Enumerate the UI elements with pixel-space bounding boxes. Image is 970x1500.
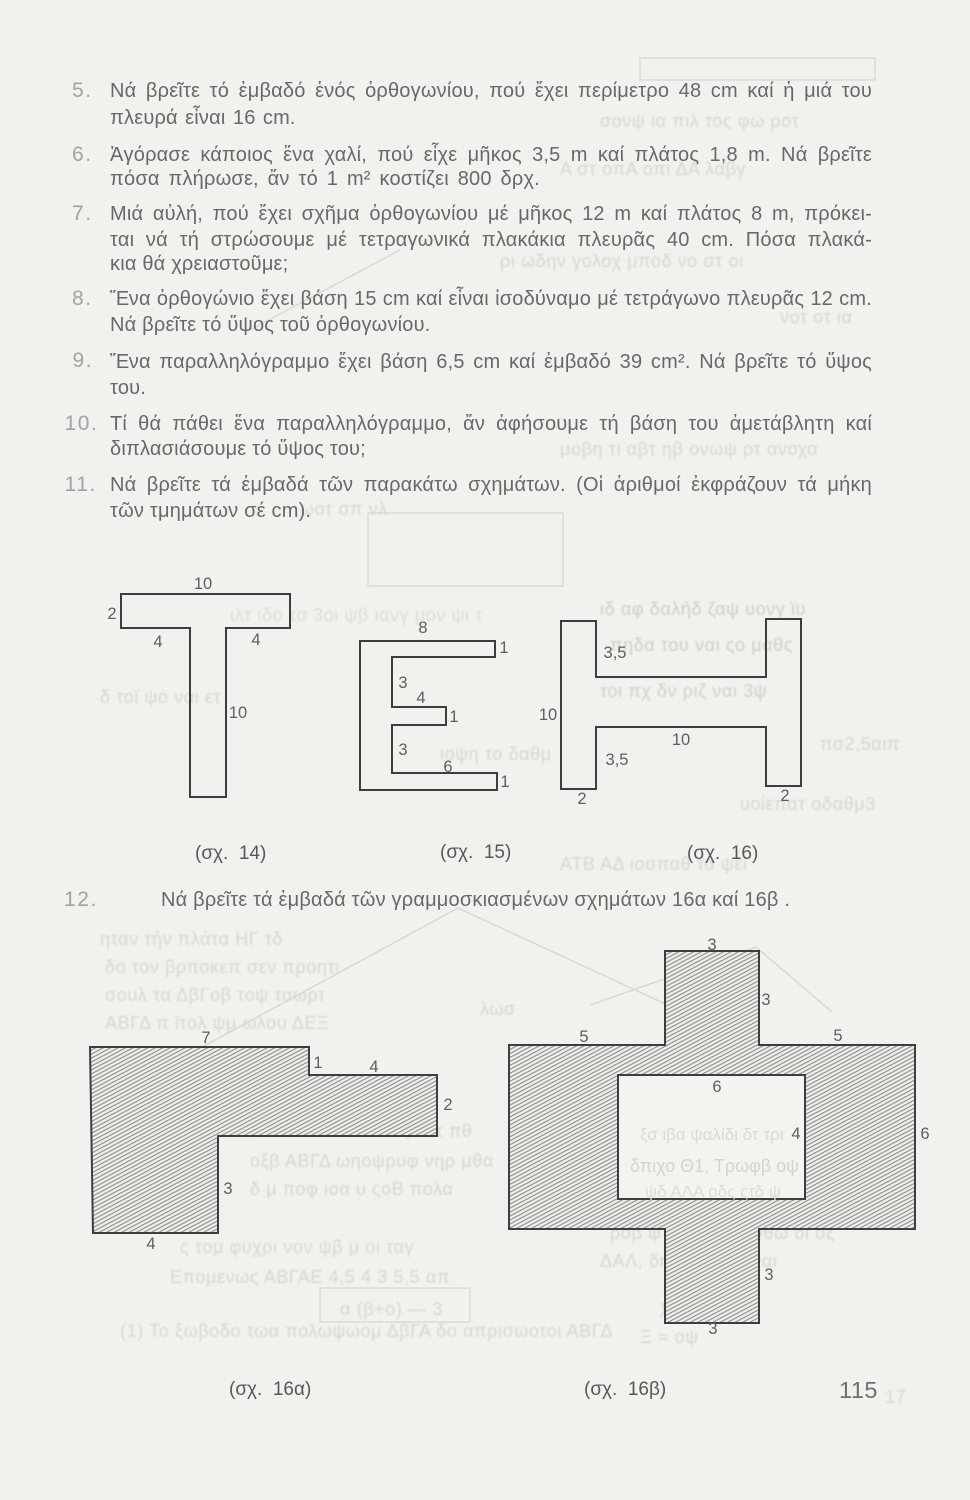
svg-text:1: 1 — [313, 1054, 322, 1072]
svg-text:8: 8 — [418, 619, 427, 637]
svg-text:ψδ ΑΛΑ οδς ςτδ ψ: ψδ ΑΛΑ οδς ςτδ ψ — [645, 1182, 781, 1201]
svg-text:3: 3 — [764, 1266, 773, 1284]
svg-text:4: 4 — [146, 1235, 155, 1253]
svg-text:2: 2 — [107, 605, 116, 623]
svg-text:4: 4 — [251, 631, 260, 649]
svg-text:2: 2 — [780, 787, 789, 805]
svg-text:1: 1 — [499, 639, 508, 657]
svg-text:3,5: 3,5 — [604, 644, 627, 662]
svg-text:3: 3 — [398, 741, 407, 759]
svg-text:1: 1 — [500, 773, 509, 791]
svg-text:2: 2 — [443, 1096, 452, 1114]
svg-text:4: 4 — [153, 633, 162, 651]
svg-text:5: 5 — [579, 1028, 588, 1046]
svg-text:δπιχο Θ1, Τρωφβ οψ: δπιχο Θ1, Τρωφβ οψ — [630, 1156, 799, 1176]
svg-text:3: 3 — [398, 674, 407, 692]
svg-text:3: 3 — [708, 1320, 717, 1338]
svg-text:6: 6 — [712, 1078, 721, 1096]
svg-text:3: 3 — [707, 936, 716, 954]
svg-text:3: 3 — [223, 1180, 232, 1198]
svg-text:4: 4 — [791, 1125, 800, 1143]
svg-text:3: 3 — [761, 991, 770, 1009]
svg-text:10: 10 — [539, 706, 557, 724]
svg-text:5: 5 — [833, 1027, 842, 1045]
svg-text:4: 4 — [416, 689, 425, 707]
svg-text:4: 4 — [369, 1058, 378, 1076]
svg-text:10: 10 — [194, 575, 212, 593]
svg-text:1: 1 — [449, 708, 458, 726]
svg-text:10: 10 — [229, 704, 247, 722]
svg-text:6: 6 — [920, 1125, 929, 1143]
svg-text:3,5: 3,5 — [606, 751, 629, 769]
svg-text:2: 2 — [577, 790, 586, 808]
svg-text:10: 10 — [672, 731, 690, 749]
svg-text:ξσ ιβα ψαλίδι δτ τρι: ξσ ιβα ψαλίδι δτ τρι — [640, 1125, 784, 1144]
svg-text:7: 7 — [201, 1029, 210, 1047]
svg-text:6: 6 — [443, 758, 452, 776]
